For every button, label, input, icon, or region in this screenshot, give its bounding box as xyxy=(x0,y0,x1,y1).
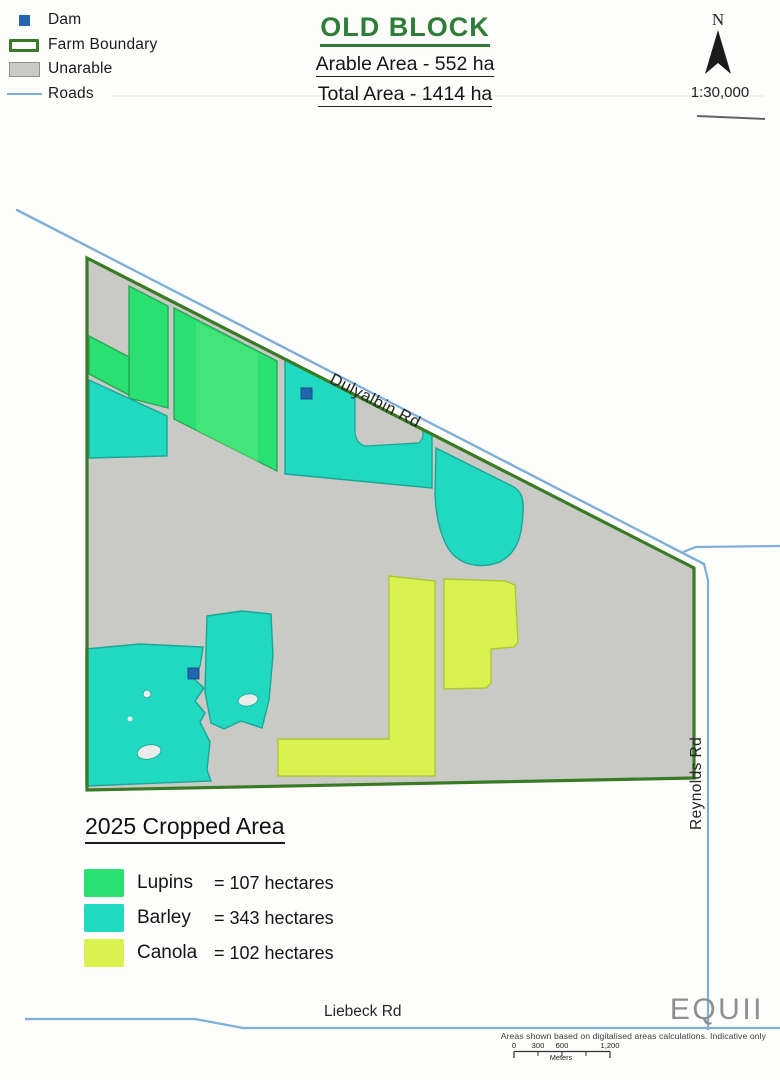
legend-label-roads: Roads xyxy=(48,85,94,103)
barley-hole-small xyxy=(143,690,151,698)
legend-label-farm-boundary: Farm Boundary xyxy=(48,36,157,54)
farm-boundary-swatch-icon xyxy=(9,39,39,52)
scale-tick-1200: 1,200 xyxy=(600,1041,619,1050)
barley-label: Barley xyxy=(137,907,200,929)
barley-hole-dot xyxy=(128,717,133,722)
map-document-page: Dam Farm Boundary Unarable Roads OLD BLO… xyxy=(0,0,780,1080)
canola-swatch xyxy=(84,939,124,967)
total-area-text: Total Area - 1414 ha xyxy=(318,83,493,107)
crop-legend-row-canola: Canola = 102 hectares xyxy=(84,938,334,968)
field-barley-southwest xyxy=(86,644,211,786)
map-scale-text: 1:30,000 xyxy=(682,84,758,101)
legend-label-unarable: Unarable xyxy=(48,60,113,78)
legend-item-roads: Roads xyxy=(0,84,94,104)
road-east-branch-line xyxy=(683,546,780,552)
cropped-area-heading: 2025 Cropped Area xyxy=(85,813,285,840)
top-right-line xyxy=(697,116,765,119)
scale-bar: 0 300 600 1,200 Meters xyxy=(511,1041,621,1067)
equii-logo: EQUII xyxy=(670,993,764,1027)
arable-area-text: Arable Area - 552 ha xyxy=(316,53,495,77)
crop-legend-row-barley: Barley = 343 hectares xyxy=(84,903,334,933)
north-arrow: N xyxy=(688,10,748,83)
scale-tick-300: 300 xyxy=(532,1041,545,1050)
canola-value: = 102 hectares xyxy=(214,943,334,964)
disclaimer-text: Areas shown based on digitalised areas c… xyxy=(501,1031,766,1041)
north-arrow-icon xyxy=(698,28,738,78)
scale-tick-0: 0 xyxy=(512,1041,516,1050)
title-block: OLD BLOCK Arable Area - 552 ha Total Are… xyxy=(240,12,570,107)
scale-bar-unit: Meters xyxy=(550,1053,573,1062)
dam-marker-south xyxy=(188,668,199,679)
road-label-reynolds: Reynolds Rd xyxy=(688,737,706,830)
lupins-value: = 107 hectares xyxy=(214,873,334,894)
barley-value: = 343 hectares xyxy=(214,908,334,929)
lupins-swatch xyxy=(84,869,124,897)
dam-marker-north xyxy=(301,388,312,399)
crop-legend-row-lupins: Lupins = 107 hectares xyxy=(84,868,334,898)
roads-swatch-icon xyxy=(7,93,42,95)
legend-label-dam: Dam xyxy=(48,11,81,29)
north-label: N xyxy=(688,10,748,30)
field-lupins-strip xyxy=(129,286,168,408)
road-liebeck-line xyxy=(25,1019,780,1028)
field-barley-south-central xyxy=(205,611,273,729)
legend-item-unarable: Unarable xyxy=(0,59,113,79)
scale-tick-600: 600 xyxy=(556,1041,569,1050)
legend-item-dam: Dam xyxy=(0,10,81,30)
page-title: OLD BLOCK xyxy=(320,12,489,47)
unarable-swatch-icon xyxy=(9,62,40,77)
lupins-label: Lupins xyxy=(137,872,200,894)
barley-swatch xyxy=(84,904,124,932)
legend-item-farm-boundary: Farm Boundary xyxy=(0,35,157,55)
dam-swatch-icon xyxy=(19,15,30,26)
road-label-liebeck: Liebeck Rd xyxy=(324,1003,402,1021)
canola-label: Canola xyxy=(137,942,200,964)
